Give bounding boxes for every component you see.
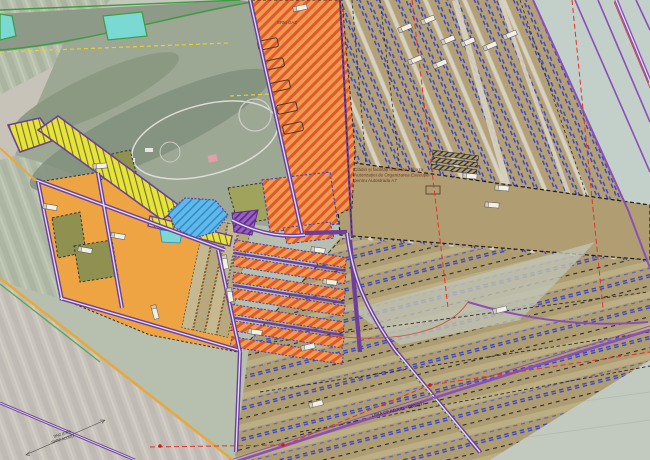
facility-note-line3: pentru Autostrada A7: [354, 178, 397, 183]
truck-icon: [93, 163, 107, 169]
facility-note-line2: Autorizației de Organizarea Execuției: [354, 173, 430, 178]
facility-note-line1: Clădiri și facilități realizate în baza: [354, 167, 424, 172]
plan-canvas: Clădiri și facilități realizate în baza …: [0, 0, 650, 460]
red-vertex-dot: [281, 443, 285, 447]
red-vertex-dot: [428, 383, 432, 387]
red-vertex-dot: [158, 444, 162, 448]
truck-icon: [495, 185, 509, 191]
pond-icon: [103, 12, 147, 40]
truck-icon: [485, 202, 499, 208]
gas-station-label: SRM GAZ: [277, 20, 297, 25]
zoning-plan-map: Clădiri și facilități realizate în baza …: [0, 0, 650, 460]
truck-icon: [463, 173, 477, 179]
